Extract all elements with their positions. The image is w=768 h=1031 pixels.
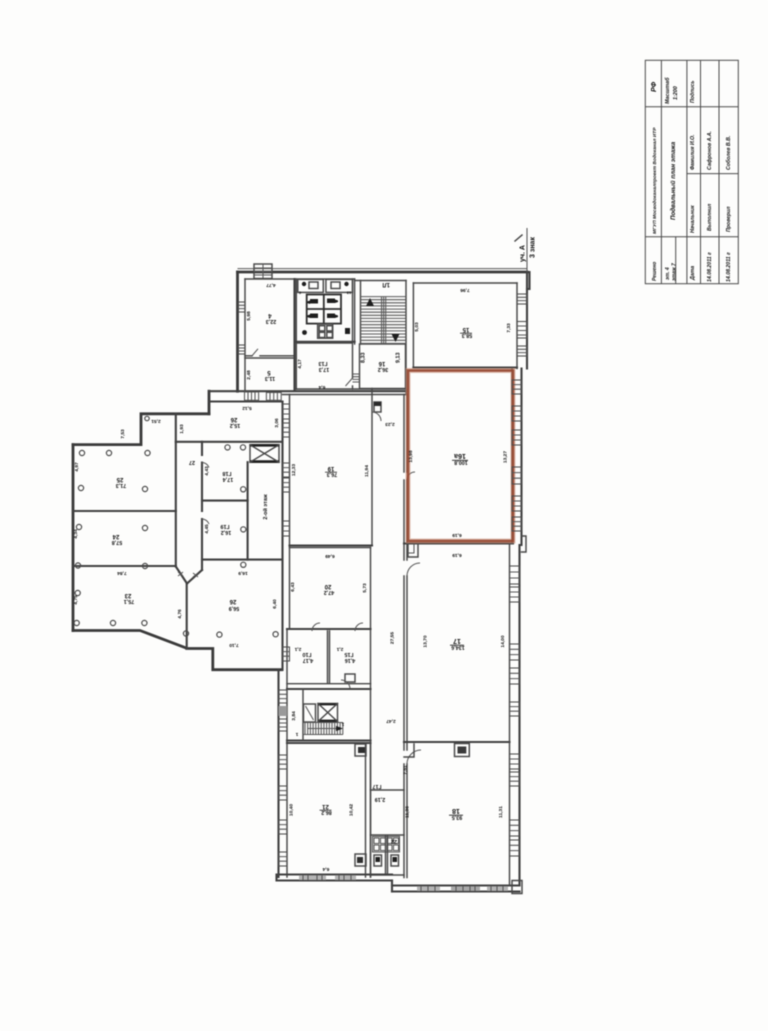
svg-text:36,2: 36,2 xyxy=(378,366,389,372)
svg-text:4,17: 4,17 xyxy=(303,657,314,663)
svg-text:уч. А: уч. А xyxy=(520,245,527,262)
svg-text:18: 18 xyxy=(452,807,460,814)
svg-text:75,1: 75,1 xyxy=(124,598,135,604)
svg-text:6,43: 6,43 xyxy=(290,582,296,592)
svg-text:15,2: 15,2 xyxy=(230,422,241,428)
svg-text:Г19: Г19 xyxy=(220,523,229,529)
svg-text:9,13: 9,13 xyxy=(395,352,401,363)
svg-text:4,16: 4,16 xyxy=(345,657,356,663)
svg-text:7,53: 7,53 xyxy=(120,429,126,439)
svg-text:3 знак: 3 знак xyxy=(530,237,537,258)
svg-text:22: 22 xyxy=(391,838,397,844)
svg-text:10,40: 10,40 xyxy=(288,804,294,817)
svg-text:17: 17 xyxy=(453,637,461,644)
svg-text:26: 26 xyxy=(230,416,237,422)
svg-text:27,55: 27,55 xyxy=(390,632,396,645)
svg-text:7,51: 7,51 xyxy=(403,765,409,775)
svg-text:1: 1 xyxy=(341,721,344,727)
svg-text:16: 16 xyxy=(378,360,385,366)
svg-text:15: 15 xyxy=(462,326,469,332)
svg-text:РФ: РФ xyxy=(651,81,658,92)
svg-text:4,76: 4,76 xyxy=(177,609,183,619)
svg-text:2-ой этаж: 2-ой этаж xyxy=(262,494,269,519)
svg-text:3,84: 3,84 xyxy=(291,711,297,721)
svg-text:71,3: 71,3 xyxy=(116,482,127,488)
svg-text:6,4: 6,4 xyxy=(322,866,329,872)
svg-text:1Л: 1Л xyxy=(382,281,390,287)
svg-text:24: 24 xyxy=(112,533,119,539)
svg-text:2,48: 2,48 xyxy=(246,370,252,380)
svg-text:7,33: 7,33 xyxy=(506,323,512,333)
svg-text:5,12: 5,12 xyxy=(242,405,252,411)
svg-text:17,3: 17,3 xyxy=(319,366,330,372)
svg-text:2,1: 2,1 xyxy=(294,646,301,652)
svg-text:2,51: 2,51 xyxy=(151,418,161,424)
svg-text:5,98: 5,98 xyxy=(246,311,252,321)
svg-text:4,77: 4,77 xyxy=(266,282,276,288)
svg-text:Проверил: Проверил xyxy=(726,206,732,232)
svg-text:Фамилия И.О.: Фамилия И.О. xyxy=(690,135,696,170)
svg-text:эт. 4: эт. 4 xyxy=(665,267,671,280)
svg-text:13,27: 13,27 xyxy=(503,451,509,464)
svg-text:6,4: 6,4 xyxy=(318,384,325,390)
svg-text:56,9: 56,9 xyxy=(229,605,240,611)
svg-text:8,33: 8,33 xyxy=(361,352,367,363)
svg-text:Масштаб: Масштаб xyxy=(664,77,671,104)
svg-text:Сафронов А.А.: Сафронов А.А. xyxy=(706,131,713,170)
svg-text:Соболев В.В.: Соболев В.В. xyxy=(725,136,732,170)
svg-text:4,17: 4,17 xyxy=(297,359,303,369)
svg-text:57,8: 57,8 xyxy=(112,539,123,545)
svg-text:11,36: 11,36 xyxy=(405,806,411,818)
svg-text:21: 21 xyxy=(322,803,329,809)
svg-text:3,06: 3,06 xyxy=(274,418,280,428)
svg-text:1,93: 1,93 xyxy=(179,424,185,434)
svg-text:7,96: 7,96 xyxy=(460,287,470,293)
svg-text:6,49: 6,49 xyxy=(325,553,335,559)
svg-text:Г13: Г13 xyxy=(318,360,327,366)
svg-text:6,19: 6,19 xyxy=(452,532,462,538)
svg-text:1: 1 xyxy=(295,731,298,737)
svg-text:14.08.2011 г: 14.08.2011 г xyxy=(707,252,713,282)
svg-text:этаж 7: этаж 7 xyxy=(672,263,678,281)
svg-text:4,45: 4,45 xyxy=(204,524,210,534)
svg-text:2,19: 2,19 xyxy=(375,796,386,802)
svg-text:МГУП Мосводоканалпроект Водока: МГУП Мосводоканалпроект Водоканал ИТР xyxy=(652,127,658,234)
svg-text:4,75: 4,75 xyxy=(73,595,79,605)
svg-text:7,10: 7,10 xyxy=(229,642,239,648)
svg-text:4,97: 4,97 xyxy=(74,462,80,472)
svg-text:5,73: 5,73 xyxy=(362,583,368,593)
svg-text:4,34: 4,34 xyxy=(73,529,79,539)
svg-text:13,98: 13,98 xyxy=(408,450,414,463)
svg-text:14,00: 14,00 xyxy=(500,635,506,648)
svg-text:Начальник: Начальник xyxy=(690,205,696,233)
svg-text:Решено: Решено xyxy=(652,262,658,281)
svg-text:11,31: 11,31 xyxy=(498,806,504,818)
svg-text:4,43: 4,43 xyxy=(204,466,210,476)
svg-text:14.08.2011 г: 14.08.2011 г xyxy=(726,252,732,282)
svg-text:25: 25 xyxy=(116,476,123,482)
svg-text:6,40: 6,40 xyxy=(272,599,278,609)
svg-text:13,70: 13,70 xyxy=(423,635,429,648)
svg-text:26: 26 xyxy=(229,598,236,604)
svg-text:27: 27 xyxy=(189,459,195,465)
svg-text:2,47: 2,47 xyxy=(386,718,396,724)
svg-text:47,2: 47,2 xyxy=(324,589,335,595)
svg-text:19: 19 xyxy=(327,465,334,471)
svg-text:16,9: 16,9 xyxy=(238,570,248,576)
svg-text:Выполнил: Выполнил xyxy=(707,203,713,231)
svg-text:5,03: 5,03 xyxy=(414,322,420,332)
svg-text:2,1: 2,1 xyxy=(336,646,343,652)
svg-text:12,33: 12,33 xyxy=(291,464,297,477)
svg-text:16а: 16а xyxy=(454,452,466,459)
svg-text:Дата: Дата xyxy=(690,266,696,281)
svg-text:17,4: 17,4 xyxy=(223,476,234,482)
svg-text:16,2: 16,2 xyxy=(221,529,232,535)
svg-text:Г18: Г18 xyxy=(222,470,231,476)
svg-text:Г17: Г17 xyxy=(372,783,381,789)
svg-text:11,94: 11,94 xyxy=(364,465,370,477)
svg-text:22,3: 22,3 xyxy=(266,318,277,324)
svg-text:20: 20 xyxy=(324,583,331,589)
svg-text:Г10: Г10 xyxy=(302,651,311,657)
svg-text:7,84: 7,84 xyxy=(117,570,127,576)
svg-text:11,3: 11,3 xyxy=(265,375,275,381)
svg-text:Г15: Г15 xyxy=(344,651,353,657)
svg-text:1:200: 1:200 xyxy=(673,86,679,100)
svg-text:10,42: 10,42 xyxy=(349,804,355,817)
svg-text:Подвальный план этажа: Подвальный план этажа xyxy=(670,141,677,220)
svg-text:2,23: 2,23 xyxy=(385,421,395,427)
svg-text:Подпись: Подпись xyxy=(690,81,696,103)
svg-text:6,19: 6,19 xyxy=(452,552,462,558)
svg-text:23: 23 xyxy=(124,592,131,598)
svg-text:13: 13 xyxy=(346,291,351,296)
